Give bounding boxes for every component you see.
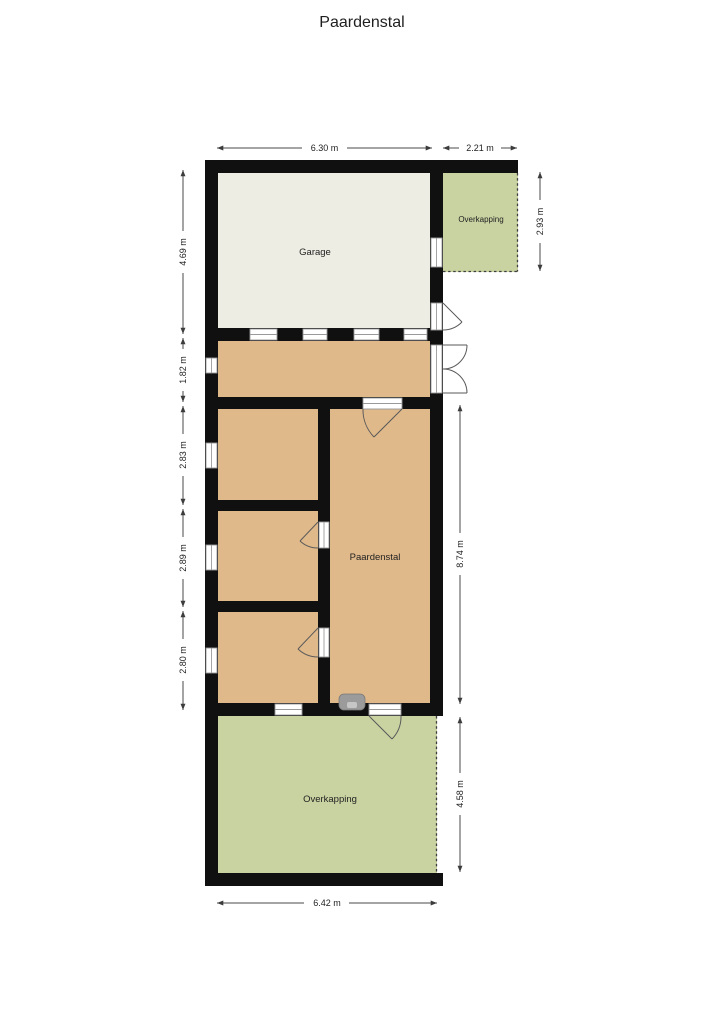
window (354, 329, 379, 340)
dimension-left-garage: 4.69 m (177, 170, 189, 334)
svg-text:4.58 m: 4.58 m (455, 780, 465, 808)
paardenstal-label: Paardenstal (350, 552, 401, 563)
garage-label: Garage (299, 247, 331, 258)
overkapping-bottom-label: Overkapping (303, 794, 357, 805)
wall-interior-h1 (218, 500, 318, 511)
svg-text:2.89 m: 2.89 m (178, 544, 188, 572)
floor-areas (218, 173, 518, 873)
door-arc (443, 303, 462, 330)
wall-rooms-bottom (205, 703, 443, 716)
window (275, 704, 302, 715)
svg-text:8.74 m: 8.74 m (455, 540, 465, 568)
overkapping-top-label: Overkapping (458, 215, 503, 224)
wall-interior-h2 (218, 601, 318, 612)
window (404, 329, 427, 340)
floor-plan-canvas: Paardenstal (0, 0, 724, 1024)
wall-top (205, 160, 518, 173)
svg-text:6.30 m: 6.30 m (311, 143, 339, 153)
window (206, 648, 217, 673)
dimension-top-overkapping: 2.21 m (443, 142, 517, 154)
page-title: Paardenstal (319, 14, 404, 31)
window (206, 545, 217, 570)
door-double-hall (431, 345, 467, 393)
window (431, 238, 442, 267)
svg-text:1.82 m: 1.82 m (178, 356, 188, 384)
dimension-right-overkapping-top: 2.93 m (534, 172, 546, 271)
wall-rooms-top (205, 397, 443, 409)
window (206, 443, 217, 468)
wall-plan-bottom (205, 873, 443, 886)
dimension-top-main: 6.30 m (217, 142, 432, 154)
dimension-left-room1: 2.83 m (177, 406, 189, 505)
floor-plan-page: Paardenstal (0, 0, 724, 1024)
svg-text:4.69 m: 4.69 m (178, 238, 188, 266)
svg-text:2.80 m: 2.80 m (178, 646, 188, 674)
window (250, 329, 277, 340)
dimension-left-room2: 2.89 m (177, 509, 189, 607)
door-arc (443, 345, 467, 393)
svg-text:6.42 m: 6.42 m (313, 898, 341, 908)
window (206, 358, 217, 373)
dimension-bottom: 6.42 m (217, 897, 437, 909)
svg-text:2.21 m: 2.21 m (466, 143, 494, 153)
dimension-left-room3: 2.80 m (177, 611, 189, 710)
wall-interior-vertical (318, 409, 330, 703)
window (303, 329, 327, 340)
door-garage-side (431, 303, 462, 330)
dimension-right-stable: 8.74 m (454, 405, 466, 704)
dimension-right-overkapping-bottom: 4.58 m (454, 717, 466, 872)
svg-text:2.93 m: 2.93 m (535, 208, 545, 236)
svg-text:2.83 m: 2.83 m (178, 441, 188, 469)
dimension-left-hall: 1.82 m (177, 338, 189, 402)
sink-icon (339, 694, 365, 710)
wall-left (205, 160, 218, 886)
